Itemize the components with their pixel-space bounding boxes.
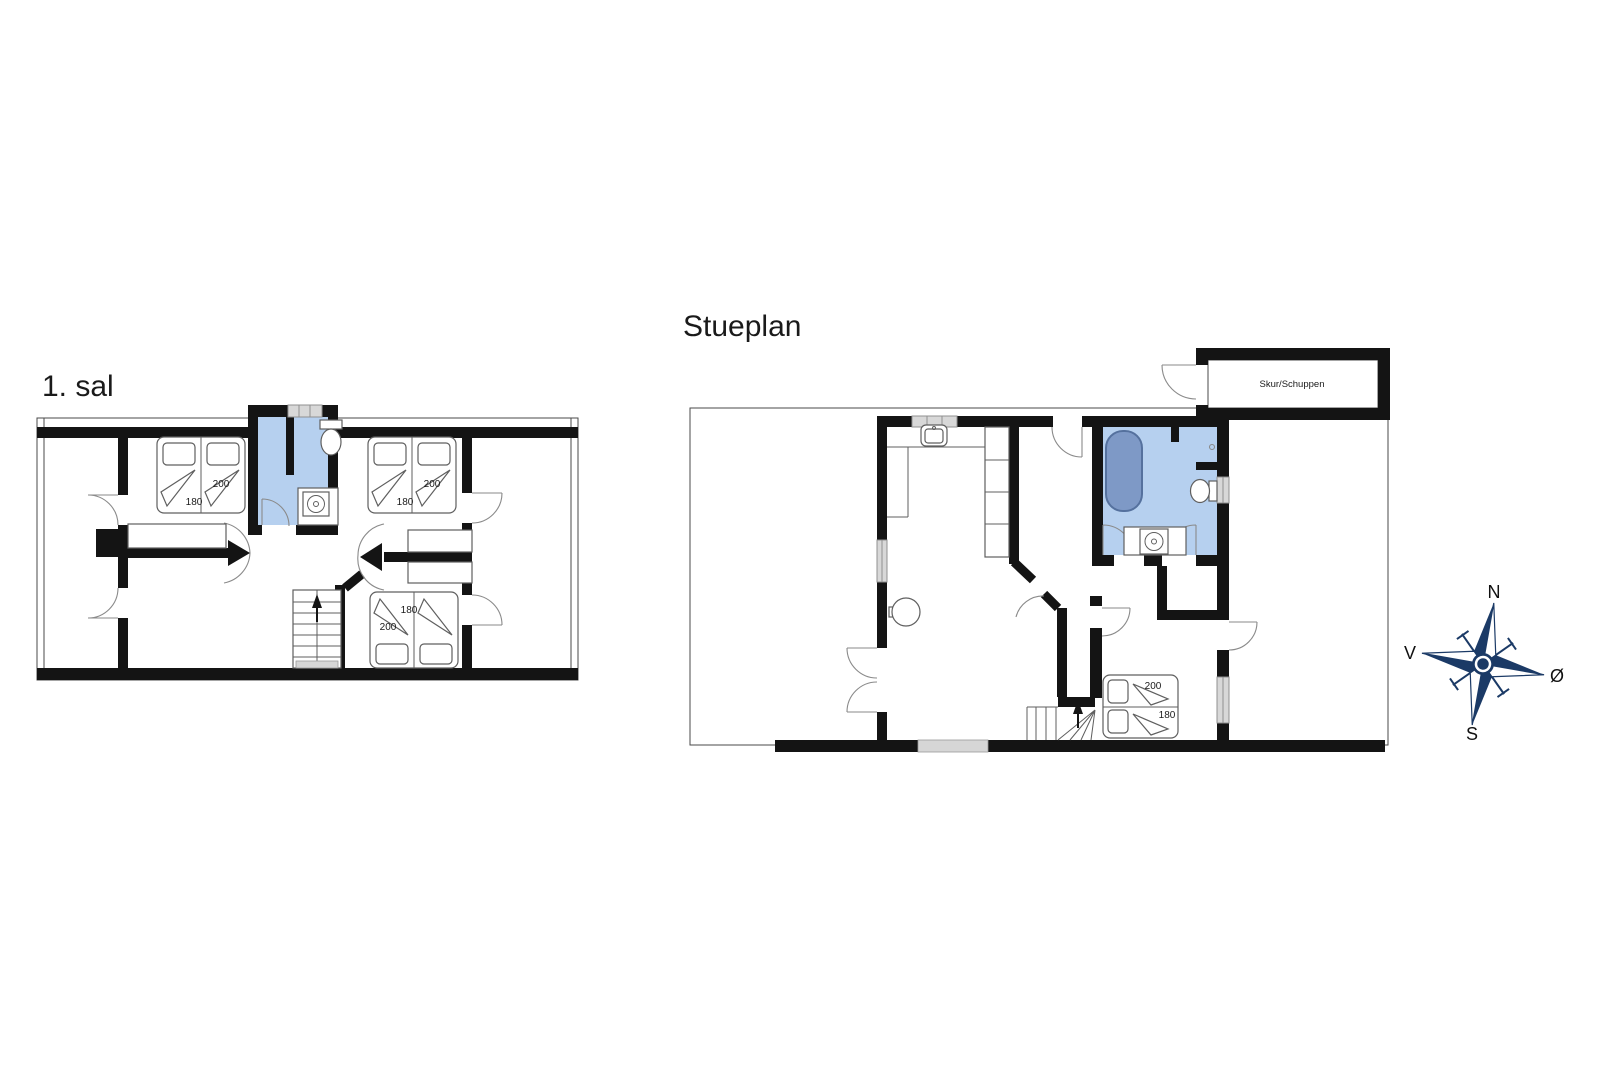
wardrobe	[128, 524, 226, 548]
plan-title-first-floor: 1. sal	[42, 370, 114, 403]
bed-icon-south: 200 180	[1103, 675, 1178, 738]
bathtub-icon	[1106, 431, 1142, 511]
pillow	[420, 644, 452, 664]
wardrobe	[408, 562, 472, 583]
compass-label-south: S	[1466, 724, 1478, 744]
bed-width-label: 180	[1159, 710, 1176, 721]
floor-plans-canvas: 1. sal	[0, 0, 1600, 1066]
pillow	[1108, 710, 1128, 733]
bed-width-label: 180	[397, 497, 414, 508]
bed-icon-northwest: 200 180	[157, 437, 245, 513]
bed-icon-southeast: 180 200	[370, 592, 458, 668]
window-bathroom-first-floor	[288, 405, 322, 417]
floor-plan-page: 1. sal	[0, 0, 1600, 1066]
compass-label-west: V	[1404, 643, 1416, 663]
shed-label: Skur/Schuppen	[1260, 379, 1325, 390]
sink-unit-first-floor	[298, 488, 338, 525]
bed-length-label: 200	[213, 479, 230, 490]
pillow	[1108, 680, 1128, 703]
chimney	[96, 529, 128, 557]
bed-length-label: 200	[380, 622, 397, 633]
compass-rose: N V Ø S	[1404, 582, 1564, 744]
terrace-outline	[690, 408, 1388, 745]
threshold	[296, 661, 338, 668]
compass-label-east: Ø	[1550, 666, 1564, 686]
window-west	[877, 540, 887, 582]
floor-plan-ground-floor: Stueplan Skur/Schuppen	[683, 310, 1390, 752]
washing-machine-icon	[1124, 527, 1186, 555]
terrace-door-sill	[918, 740, 988, 752]
floor-plan-first-floor: 1. sal	[37, 370, 578, 680]
toilet-icon-ground-floor	[1191, 480, 1218, 503]
kitchen-cabinet-column	[985, 427, 1009, 557]
pillow	[163, 443, 195, 465]
bed-width-label: 180	[401, 605, 418, 616]
pillow	[207, 443, 239, 465]
kitchen-sink-icon	[921, 425, 947, 446]
compass-label-north: N	[1488, 582, 1501, 602]
bed-length-label: 200	[1145, 681, 1162, 692]
pillow	[374, 443, 406, 465]
staircase-first-floor	[293, 590, 341, 668]
wardrobe	[408, 530, 472, 552]
bed-icon-northeast: 200 180	[368, 437, 456, 513]
pillow	[418, 443, 450, 465]
plan-title-ground-floor: Stueplan	[683, 310, 801, 343]
toilet-icon-first-floor	[320, 420, 342, 455]
window-east-lower	[1217, 677, 1229, 723]
bed-width-label: 180	[186, 497, 203, 508]
compass-points	[1411, 592, 1555, 736]
pillow	[376, 644, 408, 664]
window-east-upper	[1217, 477, 1229, 503]
bed-length-label: 200	[424, 479, 441, 490]
